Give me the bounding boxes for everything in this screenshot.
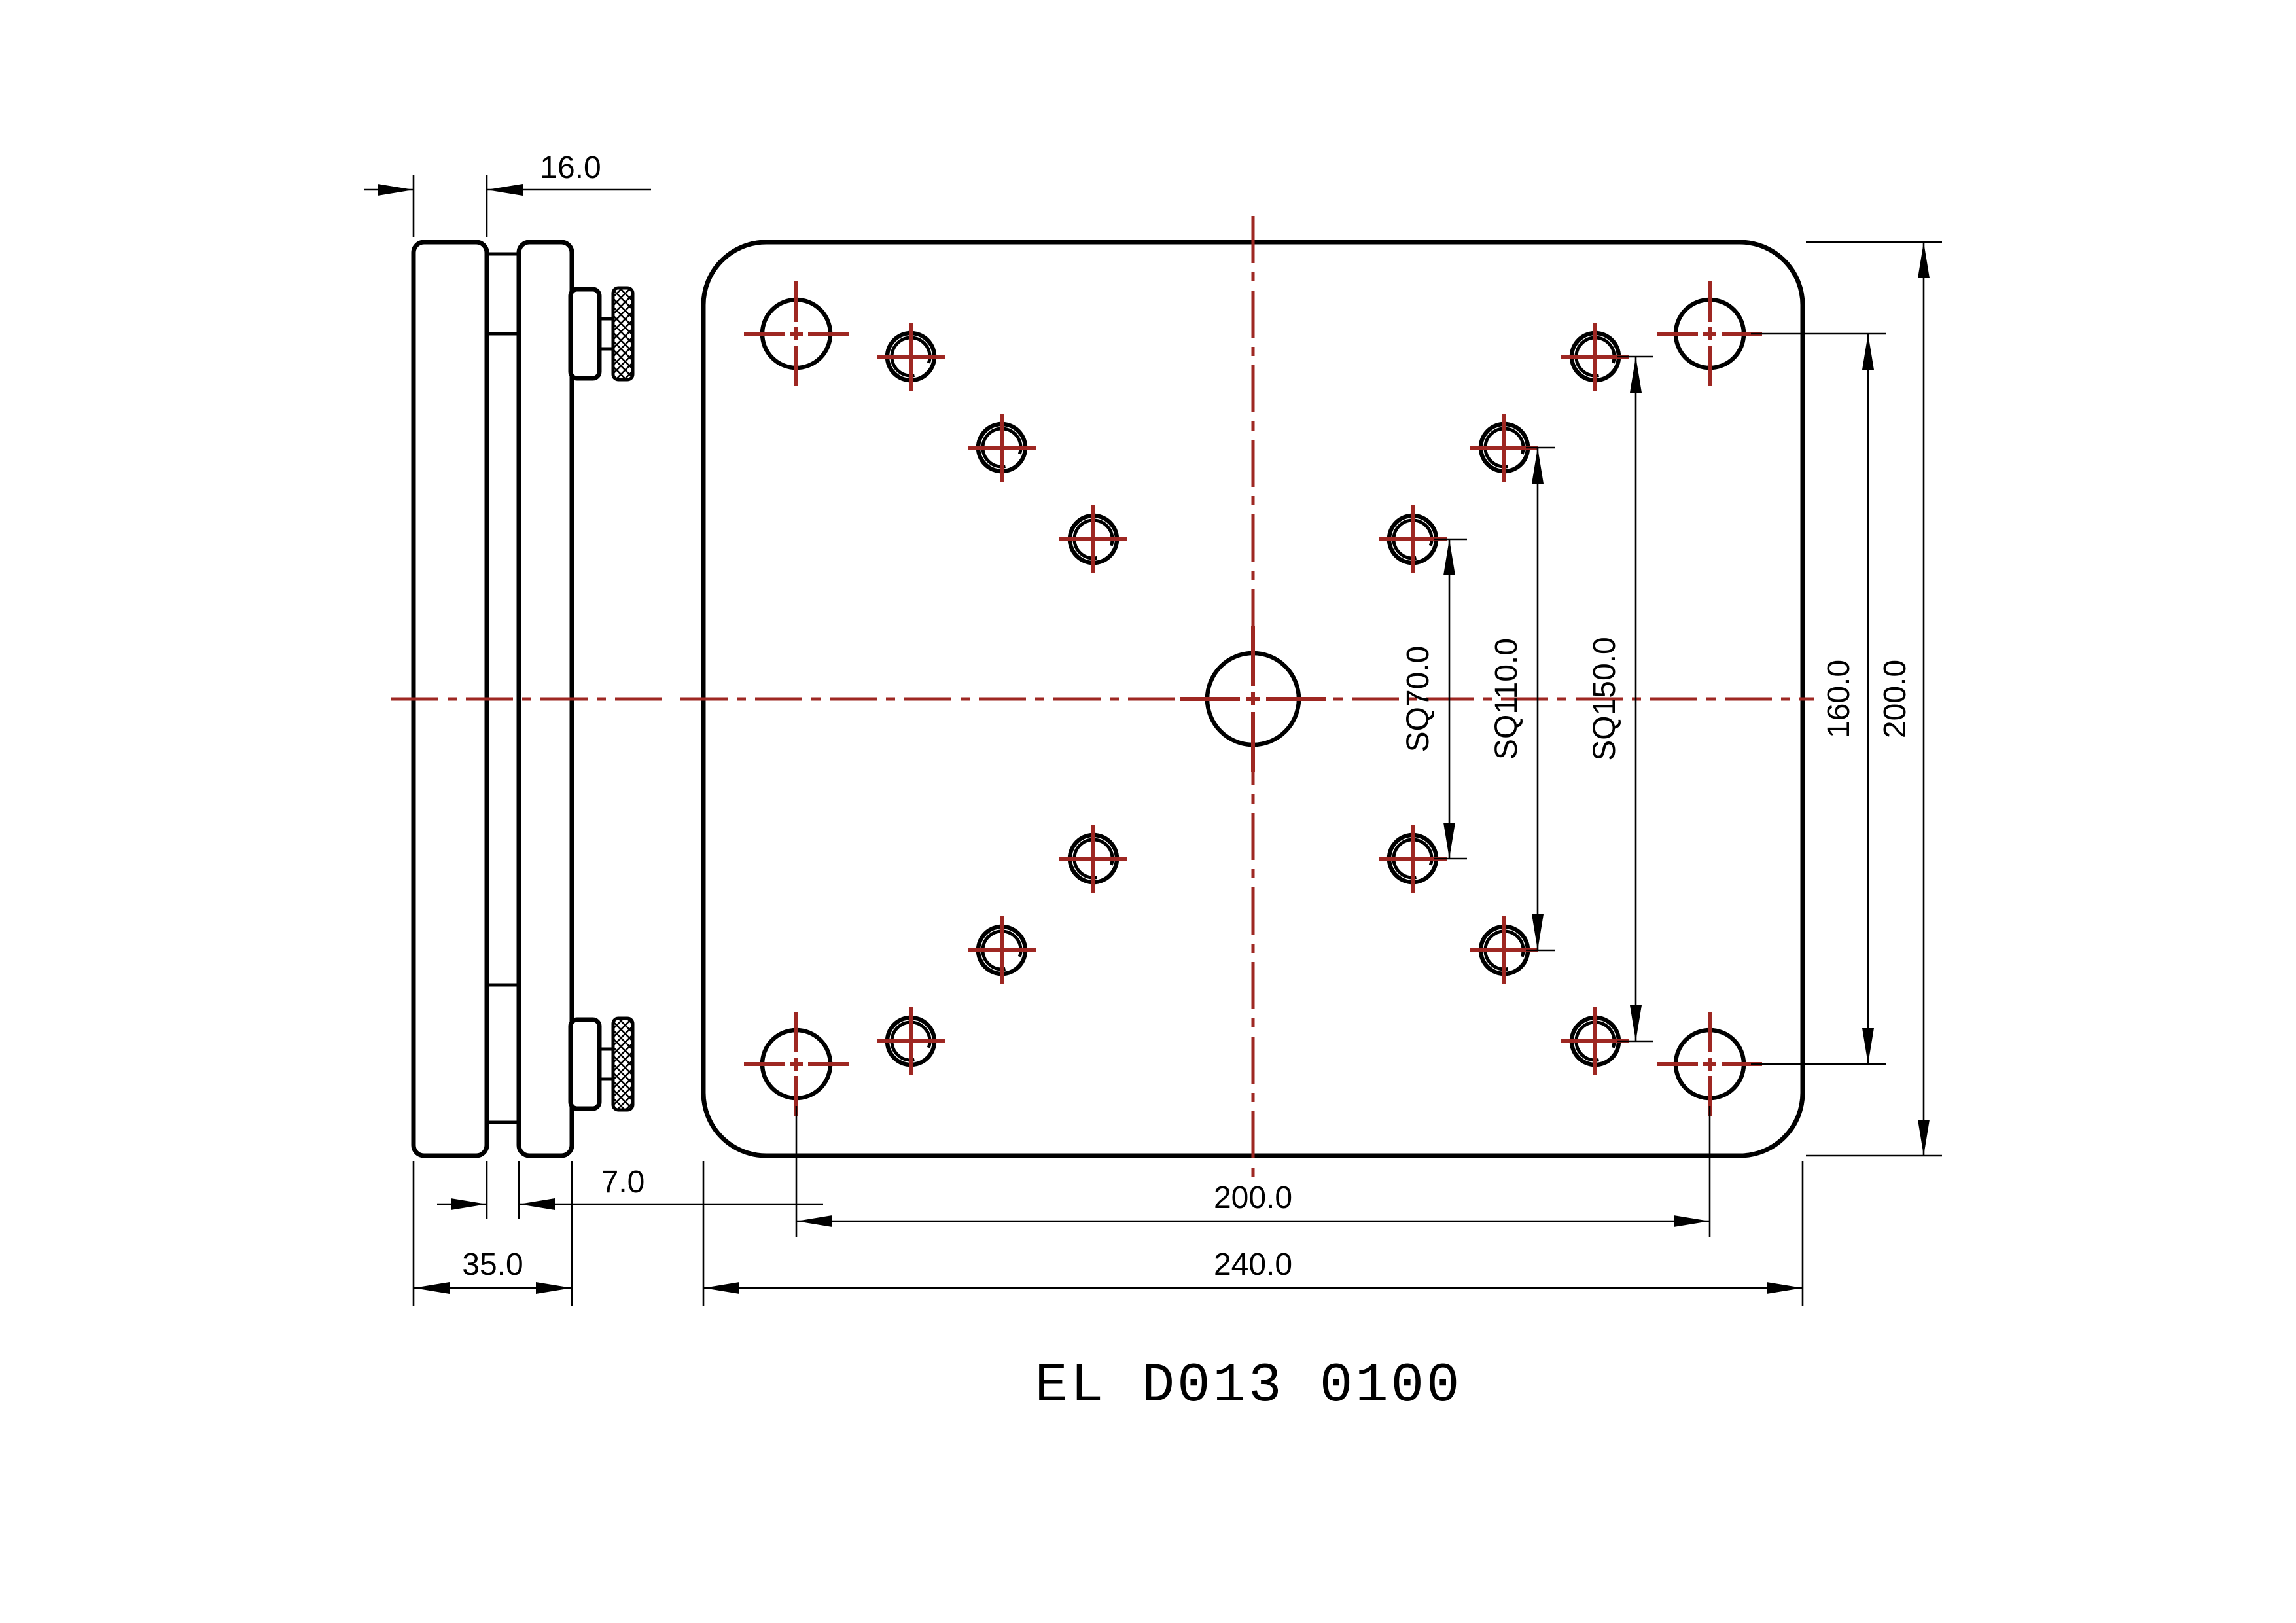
drawing-sheet: 16.0 7.0 35.0 200.0 240.0 bbox=[0, 0, 2296, 1623]
thumbscrew-top bbox=[571, 288, 633, 380]
technical-drawing: 16.0 7.0 35.0 200.0 240.0 bbox=[0, 0, 2296, 1623]
dim-label-7: 7.0 bbox=[601, 1165, 645, 1200]
screw-boss bbox=[571, 289, 599, 378]
dim-label-200-bottom: 200.0 bbox=[1214, 1181, 1292, 1215]
dim-label-sq150: SQ150.0 bbox=[1587, 637, 1622, 760]
dim-label-16: 16.0 bbox=[540, 151, 601, 185]
dim-label-sq70: SQ70.0 bbox=[1401, 646, 1436, 753]
knurled-knob bbox=[613, 288, 633, 380]
dim-label-200-right: 200.0 bbox=[1878, 660, 1913, 738]
front-view bbox=[680, 216, 1814, 1178]
dim-label-160: 160.0 bbox=[1822, 660, 1856, 738]
drawing-number: EL D013 0100 bbox=[1035, 1355, 1462, 1418]
dim-label-240: 240.0 bbox=[1214, 1247, 1292, 1282]
dim-label-sq110: SQ110.0 bbox=[1489, 638, 1524, 760]
side-view bbox=[391, 242, 662, 1156]
thumbscrew-bottom bbox=[571, 1018, 633, 1110]
dim-label-35: 35.0 bbox=[462, 1247, 523, 1282]
screw-boss bbox=[571, 1020, 599, 1109]
knurled-knob bbox=[613, 1018, 633, 1110]
